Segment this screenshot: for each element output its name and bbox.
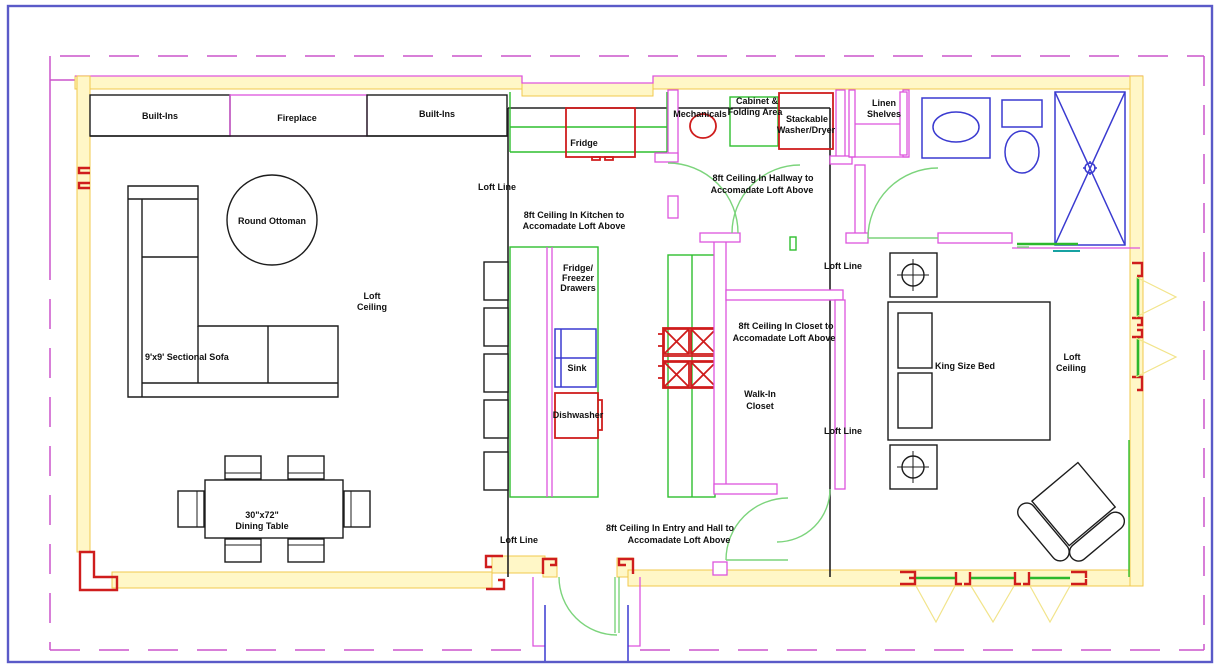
- bathroom-wall: [900, 92, 907, 155]
- entry-ceiling-label-1: 8ft Ceiling In Entry and Hall to: [606, 523, 735, 533]
- bar-stools: [484, 262, 508, 490]
- loft-line-label-1: Loft Line: [478, 182, 516, 192]
- hallway-ceiling-label-2: Accomadate Loft Above: [711, 185, 814, 195]
- nightstand-1: [890, 253, 937, 297]
- sink-label: Sink: [567, 363, 587, 373]
- dishwasher-label: Dishwasher: [553, 410, 604, 420]
- cabinet-label-2: Folding Area: [728, 107, 784, 117]
- washer-dryer-label-1: Stackable: [786, 114, 828, 124]
- loft-ceiling-left-label-1: Loft: [364, 291, 381, 301]
- entry-door: [559, 577, 619, 635]
- washer-dryer-label-2: Washer/Dryer: [777, 125, 836, 135]
- loft-line-label-3: Loft Line: [824, 261, 862, 271]
- linen-label-1: Linen: [872, 98, 896, 108]
- sectional-sofa-label: 9'x9' Sectional Sofa: [145, 352, 230, 362]
- closet-ceiling-label-2: Accomadate Loft Above: [733, 333, 836, 343]
- hallway-ceiling-label-1: 8ft Ceiling In Hallway to: [712, 173, 814, 183]
- armchair: [1014, 460, 1128, 574]
- fridge-freezer-label-2: Freezer: [562, 273, 595, 283]
- loft-ceiling-right-label-1: Loft: [1064, 352, 1081, 362]
- nightstand-2: [890, 445, 937, 489]
- walkin-label-1: Walk-In: [744, 389, 776, 399]
- sink: [555, 329, 596, 387]
- entry-vestibule: [533, 577, 640, 661]
- loft-ceiling-left-label-2: Ceiling: [357, 302, 387, 312]
- closet-door: [777, 489, 830, 542]
- built-ins-left-label: Built-Ins: [142, 111, 178, 121]
- kitchen-ceiling-label-1: 8ft Ceiling In Kitchen to: [524, 210, 625, 220]
- loft-line-label-2: Loft Line: [500, 535, 538, 545]
- floor-plan-drawing: Built-Ins Fireplace Built-Ins Round Otto…: [0, 0, 1220, 669]
- dining-set: [178, 456, 370, 562]
- mechanicals-label: Mechanicals: [673, 109, 727, 119]
- king-bed-label: King Size Bed: [935, 361, 995, 371]
- sectional-sofa: [128, 186, 338, 397]
- floor-plan: Built-Ins Fireplace Built-Ins Round Otto…: [0, 0, 1220, 669]
- range-cooktop: [658, 328, 717, 388]
- shower: [1055, 92, 1125, 245]
- loft-line-label-4: Loft Line: [824, 426, 862, 436]
- built-ins-right-label: Built-Ins: [419, 109, 455, 119]
- fridge-label: Fridge: [570, 138, 598, 148]
- entry-ceiling-label-2: Accomadate Loft Above: [628, 535, 731, 545]
- cabinet-label-1: Cabinet &: [736, 96, 779, 106]
- loft-ceiling-right-label-2: Ceiling: [1056, 363, 1086, 373]
- dining-label-1: 30"x72": [245, 510, 279, 520]
- walkin-label-2: Closet: [746, 401, 774, 411]
- linen-label-2: Shelves: [867, 109, 901, 119]
- round-ottoman-label: Round Ottoman: [238, 216, 306, 226]
- lot-boundary: [8, 6, 1212, 662]
- entry-hall-door: [726, 498, 788, 560]
- fridge-freezer-label-1: Fridge/: [563, 263, 594, 273]
- fridge-freezer-label-3: Drawers: [560, 283, 596, 293]
- king-bed: [888, 302, 1050, 440]
- bedroom-door: [868, 168, 938, 238]
- kitchen-ceiling-label-2: Accomadate Loft Above: [523, 221, 626, 231]
- vanity-sink: [922, 98, 990, 158]
- closet-ceiling-label-1: 8ft Ceiling In Closet to: [738, 321, 834, 331]
- dining-label-2: Dining Table: [235, 521, 288, 531]
- fireplace-label: Fireplace: [277, 113, 317, 123]
- toilet: [1002, 100, 1042, 173]
